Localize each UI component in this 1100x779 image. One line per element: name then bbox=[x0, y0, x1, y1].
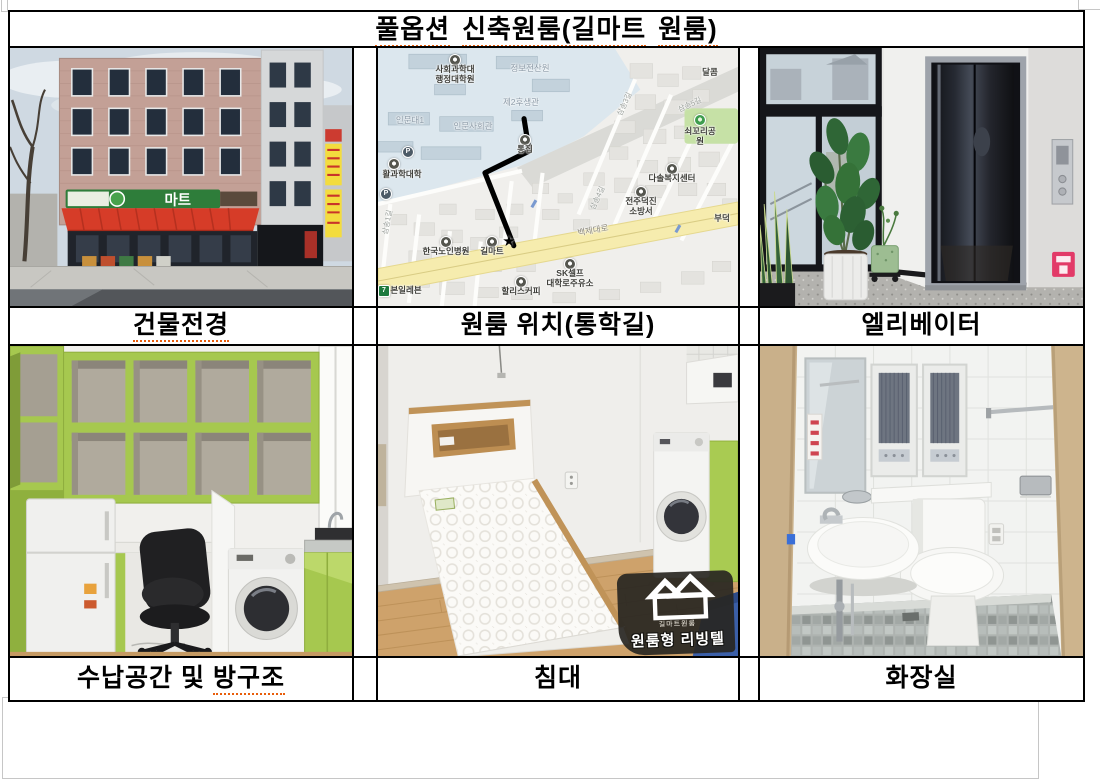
bed-photo: 길마트원룸 원룸형 리빙텔 bbox=[378, 346, 738, 656]
title-cell: 풀옵션신축원룸(길마트원룸) bbox=[9, 11, 1084, 47]
storage-photo-cell bbox=[9, 345, 353, 657]
table-spacer bbox=[353, 345, 377, 657]
title-word: 풀옵션 bbox=[375, 14, 450, 47]
document-page: { "title_parts": ["풀옵션", "신축원룸(길마트", "원룸… bbox=[0, 0, 1100, 750]
page-artifact-top-right bbox=[1078, 0, 1100, 10]
table-spacer bbox=[739, 47, 759, 307]
map-photo-cell: 사회과학대 행정대학원 정보전산원 제2후생관 달콤 인문대1 인문사회관 통집… bbox=[377, 47, 739, 307]
caption-cell-elevator: 엘리베이터 bbox=[759, 307, 1084, 345]
building-photo-illustration: 마트 bbox=[10, 48, 352, 306]
table-spacer bbox=[739, 345, 759, 657]
elevator-photo-illustration bbox=[760, 48, 1083, 306]
listing-table: 풀옵션신축원룸(길마트원룸) bbox=[8, 10, 1085, 702]
bathroom-photo-cell bbox=[759, 345, 1084, 657]
building-photo-cell: 마트 bbox=[9, 47, 353, 307]
caption-building: 건물전경 bbox=[10, 312, 352, 340]
page-title: 풀옵션신축원룸(길마트원룸) bbox=[10, 16, 1083, 42]
caption-cell-building: 건물전경 bbox=[9, 307, 353, 345]
table-spacer bbox=[353, 47, 377, 307]
watermark-label: 원룸형 리빙텔 bbox=[631, 627, 726, 651]
page-artifact-bottom bbox=[2, 697, 1039, 779]
bathroom-photo bbox=[760, 346, 1083, 656]
mart-sign-text: 마트 bbox=[165, 192, 192, 209]
table-spacer bbox=[353, 657, 377, 701]
elevator-photo bbox=[760, 48, 1083, 306]
table-spacer bbox=[353, 307, 377, 345]
map-photo: 사회과학대 행정대학원 정보전산원 제2후생관 달콤 인문대1 인문사회관 통집… bbox=[378, 48, 738, 306]
caption-storage: 수납공간 및방구조 bbox=[10, 665, 352, 693]
caption-bed: 침대 bbox=[378, 665, 738, 693]
title-word: 원룸) bbox=[658, 14, 718, 47]
elevator-photo-cell bbox=[759, 47, 1084, 307]
caption-elevator: 엘리베이터 bbox=[760, 312, 1083, 340]
bed-photo-cell: 길마트원룸 원룸형 리빙텔 bbox=[377, 345, 739, 657]
bathroom-photo-illustration bbox=[760, 346, 1083, 656]
caption-cell-bathroom: 화장실 bbox=[759, 657, 1084, 701]
house-logo-icon bbox=[629, 573, 725, 623]
storage-photo-illustration bbox=[10, 346, 352, 656]
building-photo: 마트 bbox=[10, 48, 352, 306]
caption-map: 원룸 위치(통학길) bbox=[378, 312, 738, 340]
title-word: 신축원룸(길마트 bbox=[462, 14, 646, 47]
map-illustration bbox=[378, 48, 738, 306]
table-spacer bbox=[739, 307, 759, 345]
caption-cell-map: 원룸 위치(통학길) bbox=[377, 307, 739, 345]
storage-photo bbox=[10, 346, 352, 656]
caption-bathroom: 화장실 bbox=[760, 665, 1083, 693]
table-spacer bbox=[739, 657, 759, 701]
caption-cell-storage: 수납공간 및방구조 bbox=[9, 657, 353, 701]
caption-cell-bed: 침대 bbox=[377, 657, 739, 701]
bed-photo-watermark: 길마트원룸 원룸형 리빙텔 bbox=[617, 570, 736, 656]
page-artifact-top-left bbox=[1, 0, 8, 12]
